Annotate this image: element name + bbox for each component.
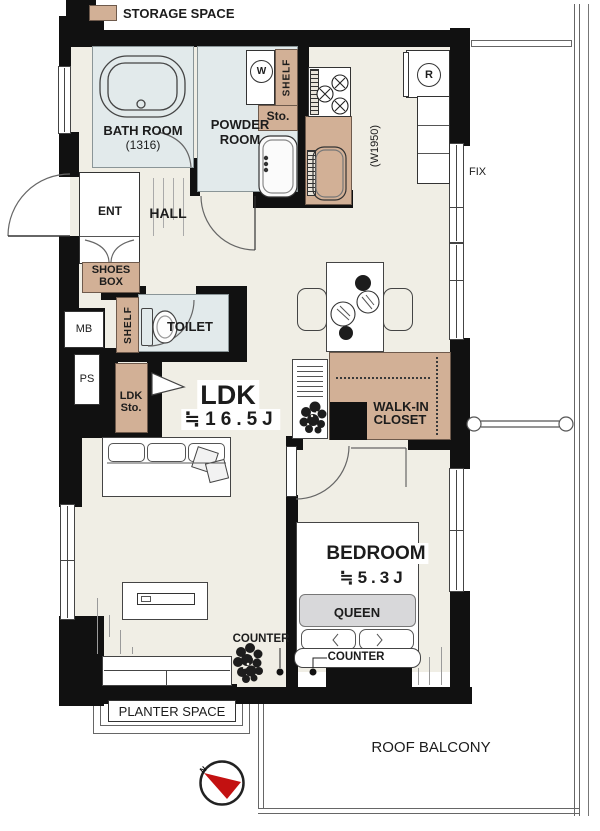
counter-ldk-label: COUNTER bbox=[233, 633, 290, 646]
window-pane-line bbox=[64, 68, 65, 132]
bed-pillow bbox=[301, 629, 356, 650]
shelf-powder-label: SHELF bbox=[277, 52, 298, 104]
curtain-line bbox=[429, 657, 430, 685]
shoes-box-label-1: SHOES bbox=[92, 264, 131, 276]
counter-line bbox=[104, 670, 230, 671]
compass: N bbox=[198, 762, 243, 805]
balcony-border-left bbox=[258, 702, 264, 808]
legend-storage-label: STORAGE SPACE bbox=[123, 6, 234, 21]
dining-chair-left bbox=[297, 288, 327, 331]
bed-pillow bbox=[359, 629, 414, 650]
window-sill-line bbox=[450, 207, 463, 208]
dining-table bbox=[326, 262, 384, 352]
dining-chair-right bbox=[383, 288, 413, 331]
wall-segment bbox=[59, 132, 79, 177]
queen-bed-label: QUEEN bbox=[334, 606, 380, 621]
laundry-pole-ring bbox=[559, 417, 573, 431]
planter-label-box: PLANTER SPACE bbox=[108, 700, 236, 722]
legend-storage-swatch bbox=[89, 5, 117, 21]
toilet-tank bbox=[141, 308, 153, 346]
wall-segment bbox=[59, 236, 79, 314]
powder-room-label-2: ROOM bbox=[220, 133, 260, 148]
window-sill-line bbox=[450, 530, 463, 531]
entrance-label: ENT bbox=[98, 205, 122, 218]
counter-bedroom-label: COUNTER bbox=[328, 651, 385, 664]
planter-space-label: PLANTER SPACE bbox=[119, 704, 226, 719]
closet-hanger-line bbox=[436, 357, 438, 435]
sink-drain-board bbox=[307, 150, 316, 196]
wall-segment bbox=[450, 591, 470, 704]
cupboard-shelf-line bbox=[418, 153, 449, 154]
sofa-cushion bbox=[108, 443, 145, 462]
refrigerator-icon: R bbox=[417, 63, 441, 87]
refrigerator-panel bbox=[403, 52, 409, 97]
sto-label: Sto. bbox=[267, 110, 290, 123]
compass-north-label: N bbox=[198, 764, 208, 775]
unit-floor-strip bbox=[228, 666, 290, 688]
curtain-line bbox=[418, 668, 419, 685]
shelf-toilet-label: SHELF bbox=[117, 299, 139, 351]
sofa-cushion bbox=[147, 443, 186, 462]
bath-room-size: (1316) bbox=[126, 139, 161, 152]
wall-segment bbox=[147, 362, 162, 440]
window-pane-line bbox=[456, 145, 457, 241]
window-pane-line bbox=[67, 506, 68, 618]
balcony-border-bottom bbox=[258, 808, 580, 814]
powder-room-label-1: POWDER bbox=[211, 118, 270, 133]
ldk-storage-label-2: Sto. bbox=[121, 402, 142, 414]
ldk-storage-label-1: LDK bbox=[120, 390, 143, 402]
fix-window-label: FIX bbox=[469, 166, 486, 178]
refrigerator-label: R bbox=[425, 69, 433, 81]
wall-segment bbox=[450, 28, 470, 146]
hall-label: HALL bbox=[149, 206, 186, 222]
wall-segment bbox=[326, 666, 412, 688]
bedroom-size-label: ≒5.3J bbox=[336, 568, 409, 587]
curtain-line bbox=[132, 647, 133, 654]
shoes-box-label-2: BOX bbox=[99, 276, 123, 288]
balcony-top-bar bbox=[471, 40, 572, 47]
entrance-door-arc bbox=[8, 174, 70, 236]
compass-circle bbox=[201, 762, 244, 805]
toilet-label: TOILET bbox=[167, 320, 213, 335]
chest-drawers bbox=[297, 366, 323, 401]
curtain-line bbox=[120, 630, 121, 654]
cupboard-shelf-line bbox=[418, 125, 449, 126]
ldk-size-label: ≒16.5J bbox=[181, 409, 280, 430]
walk-in-closet-label-2: CLOSET bbox=[374, 413, 427, 428]
stove-grill bbox=[310, 69, 319, 115]
tv-detail bbox=[141, 596, 151, 602]
balcony-border-right bbox=[574, 4, 580, 816]
ldk-counter bbox=[102, 656, 232, 686]
window-sill-line bbox=[450, 280, 463, 281]
wall-closet-notch bbox=[330, 402, 367, 440]
bedroom-label: BEDROOM bbox=[323, 543, 428, 564]
wall-segment bbox=[59, 16, 71, 69]
window-pane-line bbox=[456, 245, 457, 338]
wall-segment bbox=[66, 30, 462, 47]
balcony-border-outer bbox=[588, 4, 589, 816]
wall-segment bbox=[450, 338, 470, 469]
bath-room-label: BATH ROOM bbox=[103, 124, 182, 139]
bedroom-door-leaf bbox=[286, 446, 297, 497]
entrance-step-line bbox=[80, 236, 139, 237]
closet-hanger-line bbox=[336, 377, 430, 379]
wall-segment bbox=[230, 687, 472, 704]
compass-needle-icon bbox=[204, 773, 241, 799]
curtain-line bbox=[109, 615, 110, 637]
kitchen-cupboard bbox=[417, 96, 450, 184]
window-sill-line bbox=[61, 560, 74, 561]
kitchen-width-label: (W1950) bbox=[367, 101, 383, 191]
wall-segment bbox=[59, 437, 82, 507]
floor-plan: W R PLANTER SPACE bbox=[0, 0, 600, 831]
counter-line bbox=[166, 671, 167, 685]
curtain-line bbox=[97, 598, 98, 654]
meter-box-label: MB bbox=[76, 323, 93, 335]
curtain-line bbox=[441, 647, 442, 685]
washer-label: W bbox=[257, 66, 266, 77]
ldk-label: LDK bbox=[197, 380, 259, 410]
roof-balcony-label: ROOF BALCONY bbox=[371, 740, 490, 757]
laundry-pole-bar bbox=[481, 421, 559, 427]
washing-machine-icon: W bbox=[250, 60, 273, 83]
pipe-space-label: PS bbox=[80, 373, 95, 385]
